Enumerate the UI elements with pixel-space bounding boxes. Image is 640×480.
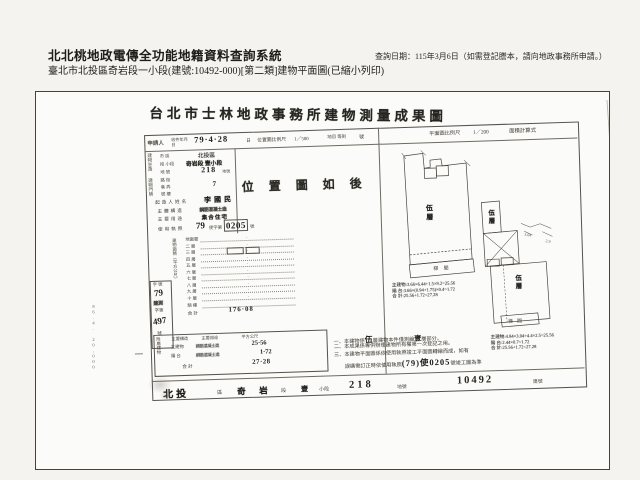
footer-building-suffix: 建號 <box>533 378 543 385</box>
total-row-label: 合 計 <box>188 311 198 317</box>
total-row-value: 176·08 <box>228 306 253 314</box>
floor-row: 地面層 <box>185 237 198 243</box>
floor-value-box <box>246 247 260 254</box>
plan-left-stair-label: 梯 間 <box>433 265 450 273</box>
serial-mid: 建測 <box>153 300 163 307</box>
location-scale-value: 1／500 <box>294 135 309 142</box>
floor-row: 九 層 <box>187 289 197 295</box>
floor-row: 八 層 <box>187 282 197 288</box>
serial-zidi: 字第 <box>154 308 163 314</box>
annex-col1: 主要構造 <box>171 336 188 343</box>
door-row-key: 巷 弄 <box>161 184 171 190</box>
plan-upper-floor-label: 伍層 <box>485 209 495 225</box>
floor-row: 二 層 <box>185 243 195 249</box>
door-group-label: 建物門牌 <box>147 178 154 200</box>
land-number-suffix: 地號 <box>222 168 230 174</box>
land-class-label: 地目 等則 <box>327 134 346 141</box>
number-label: 號 <box>359 133 364 140</box>
location-scale-label: 位置圖比例尺 <box>257 136 286 144</box>
date-suffix: 日 <box>246 138 251 144</box>
license-mid: 使字第 <box>209 225 222 231</box>
document-subtitle: 臺北市北投區奇岩段一小段(建號:10492-000)[第二類]建物平面圖(已縮小… <box>48 62 384 77</box>
door-row-value: 7 <box>212 180 216 188</box>
footer-subsection-suffix: 小段 <box>319 385 329 392</box>
floor-value-box <box>227 247 244 255</box>
receive-date-value: 79·4·28 <box>194 134 228 145</box>
floor-row: 五 層 <box>186 263 196 269</box>
structure-label: 主體構造 <box>157 208 184 215</box>
site-group-label: 建物坐落 <box>147 153 154 177</box>
scanned-survey-document: 台北市士林地政事務所建物測量成果圖 申請人 收件年月日 79·4·28 日 位置… <box>35 91 610 470</box>
footer-district-suffix: 區 <box>217 389 222 396</box>
book-binding <box>561 92 610 392</box>
annex-row-b: 鋼筋混凝土造 <box>196 343 220 350</box>
floor-row: 三 層 <box>186 250 196 256</box>
annex-row-a: 主建物 <box>171 344 184 350</box>
floor-row: 七 層 <box>186 276 196 282</box>
plan-lower-stair-label: 梯 間 <box>508 317 524 324</box>
annex-col2: 主要用途 <box>201 335 218 342</box>
footer-section-2: 岩 <box>259 384 268 396</box>
footer-section-suffix: 段 <box>281 387 286 394</box>
plan-left-floor-label: 伍層 <box>424 204 435 222</box>
plan-dimension-b: 2.9 <box>545 238 551 244</box>
right-calc-block: 主建物:4.84×3.04+4.4×2.5=25.56 陽 台:2.44×0.7… <box>490 332 554 351</box>
annex-row-value: 1·72 <box>260 348 272 355</box>
floor-row: 六 層 <box>186 269 196 275</box>
license-number: 0205 <box>224 219 248 232</box>
floor-row: 四 層 <box>186 256 196 262</box>
applicant-label: 申請人 <box>147 139 164 148</box>
floor-row: 十 層 <box>187 295 197 301</box>
owner-value: 李國民 <box>204 194 234 205</box>
site-row-key: 地 號 <box>160 169 170 175</box>
query-date: 查詢日期：115年3月6日（如需登記謄本，請向地政事務所申請。） <box>375 51 607 62</box>
plan-left-building <box>402 149 475 278</box>
annex-header: 附屬建物 <box>155 337 162 373</box>
license-year: 79 <box>196 220 205 230</box>
left-calc-block: 主建物:3.66×6.44+1.5×9.2=25.56 陽 台:3.66×(0.… <box>392 280 456 299</box>
site-plan-drawing <box>377 137 589 378</box>
footer-building-number: 10492 <box>457 374 494 386</box>
plan-dimension-a: 3.04 <box>524 232 532 238</box>
plan-scale-value: 1／200 <box>473 128 489 135</box>
owner-label: 起造人姓名 <box>155 199 188 206</box>
annex-row-b: 鋼筋混凝土造 <box>196 352 220 359</box>
scan-smudge <box>155 388 177 403</box>
scan-title: 台北市士林地政事務所建物測量成果圖 <box>149 102 447 125</box>
margin-tick <box>135 353 143 354</box>
door-row-key: 號 樓 <box>161 191 171 197</box>
footer-land-number: 218 <box>349 379 374 391</box>
area-calc-label: 面積計算式 <box>509 126 536 135</box>
land-number-value: 218 <box>201 165 216 174</box>
use-label: 主要用途 <box>158 216 185 223</box>
annex-total-value: 27·28 <box>252 358 271 366</box>
footer-land-suffix: 地號 <box>397 383 407 390</box>
annex-row-a: 陽 台 <box>171 353 181 359</box>
license-label: 使用執照 <box>158 226 185 233</box>
footer-section-1: 奇 <box>237 385 246 397</box>
annex-total-label: 合 計 <box>182 364 193 370</box>
plan-lower-floor-label: 伍層 <box>512 274 522 290</box>
site-row-key: 市 區 <box>160 153 170 159</box>
door-row-key: 路 街 <box>160 177 170 183</box>
page-edge-line <box>607 100 610 368</box>
print-batch-note: 86.4. 20,000 <box>91 304 96 370</box>
serial-year: 79 <box>153 287 163 298</box>
document-frame: 台北市士林地政事務所建物測量成果圖 申請人 收件年月日 79·4·28 日 位置… <box>35 91 610 470</box>
license-suffix: 號 <box>250 224 255 230</box>
footer-subsection: 壹 <box>301 384 308 394</box>
plan-scale-label: 平面圖比例尺 <box>429 129 460 137</box>
annex-row-value: 25·56 <box>252 339 267 346</box>
site-row-key: 段 小段 <box>160 161 174 167</box>
arcade-row: 騎 樓 <box>187 303 197 309</box>
receive-date-label: 收件年月日 <box>171 137 191 148</box>
